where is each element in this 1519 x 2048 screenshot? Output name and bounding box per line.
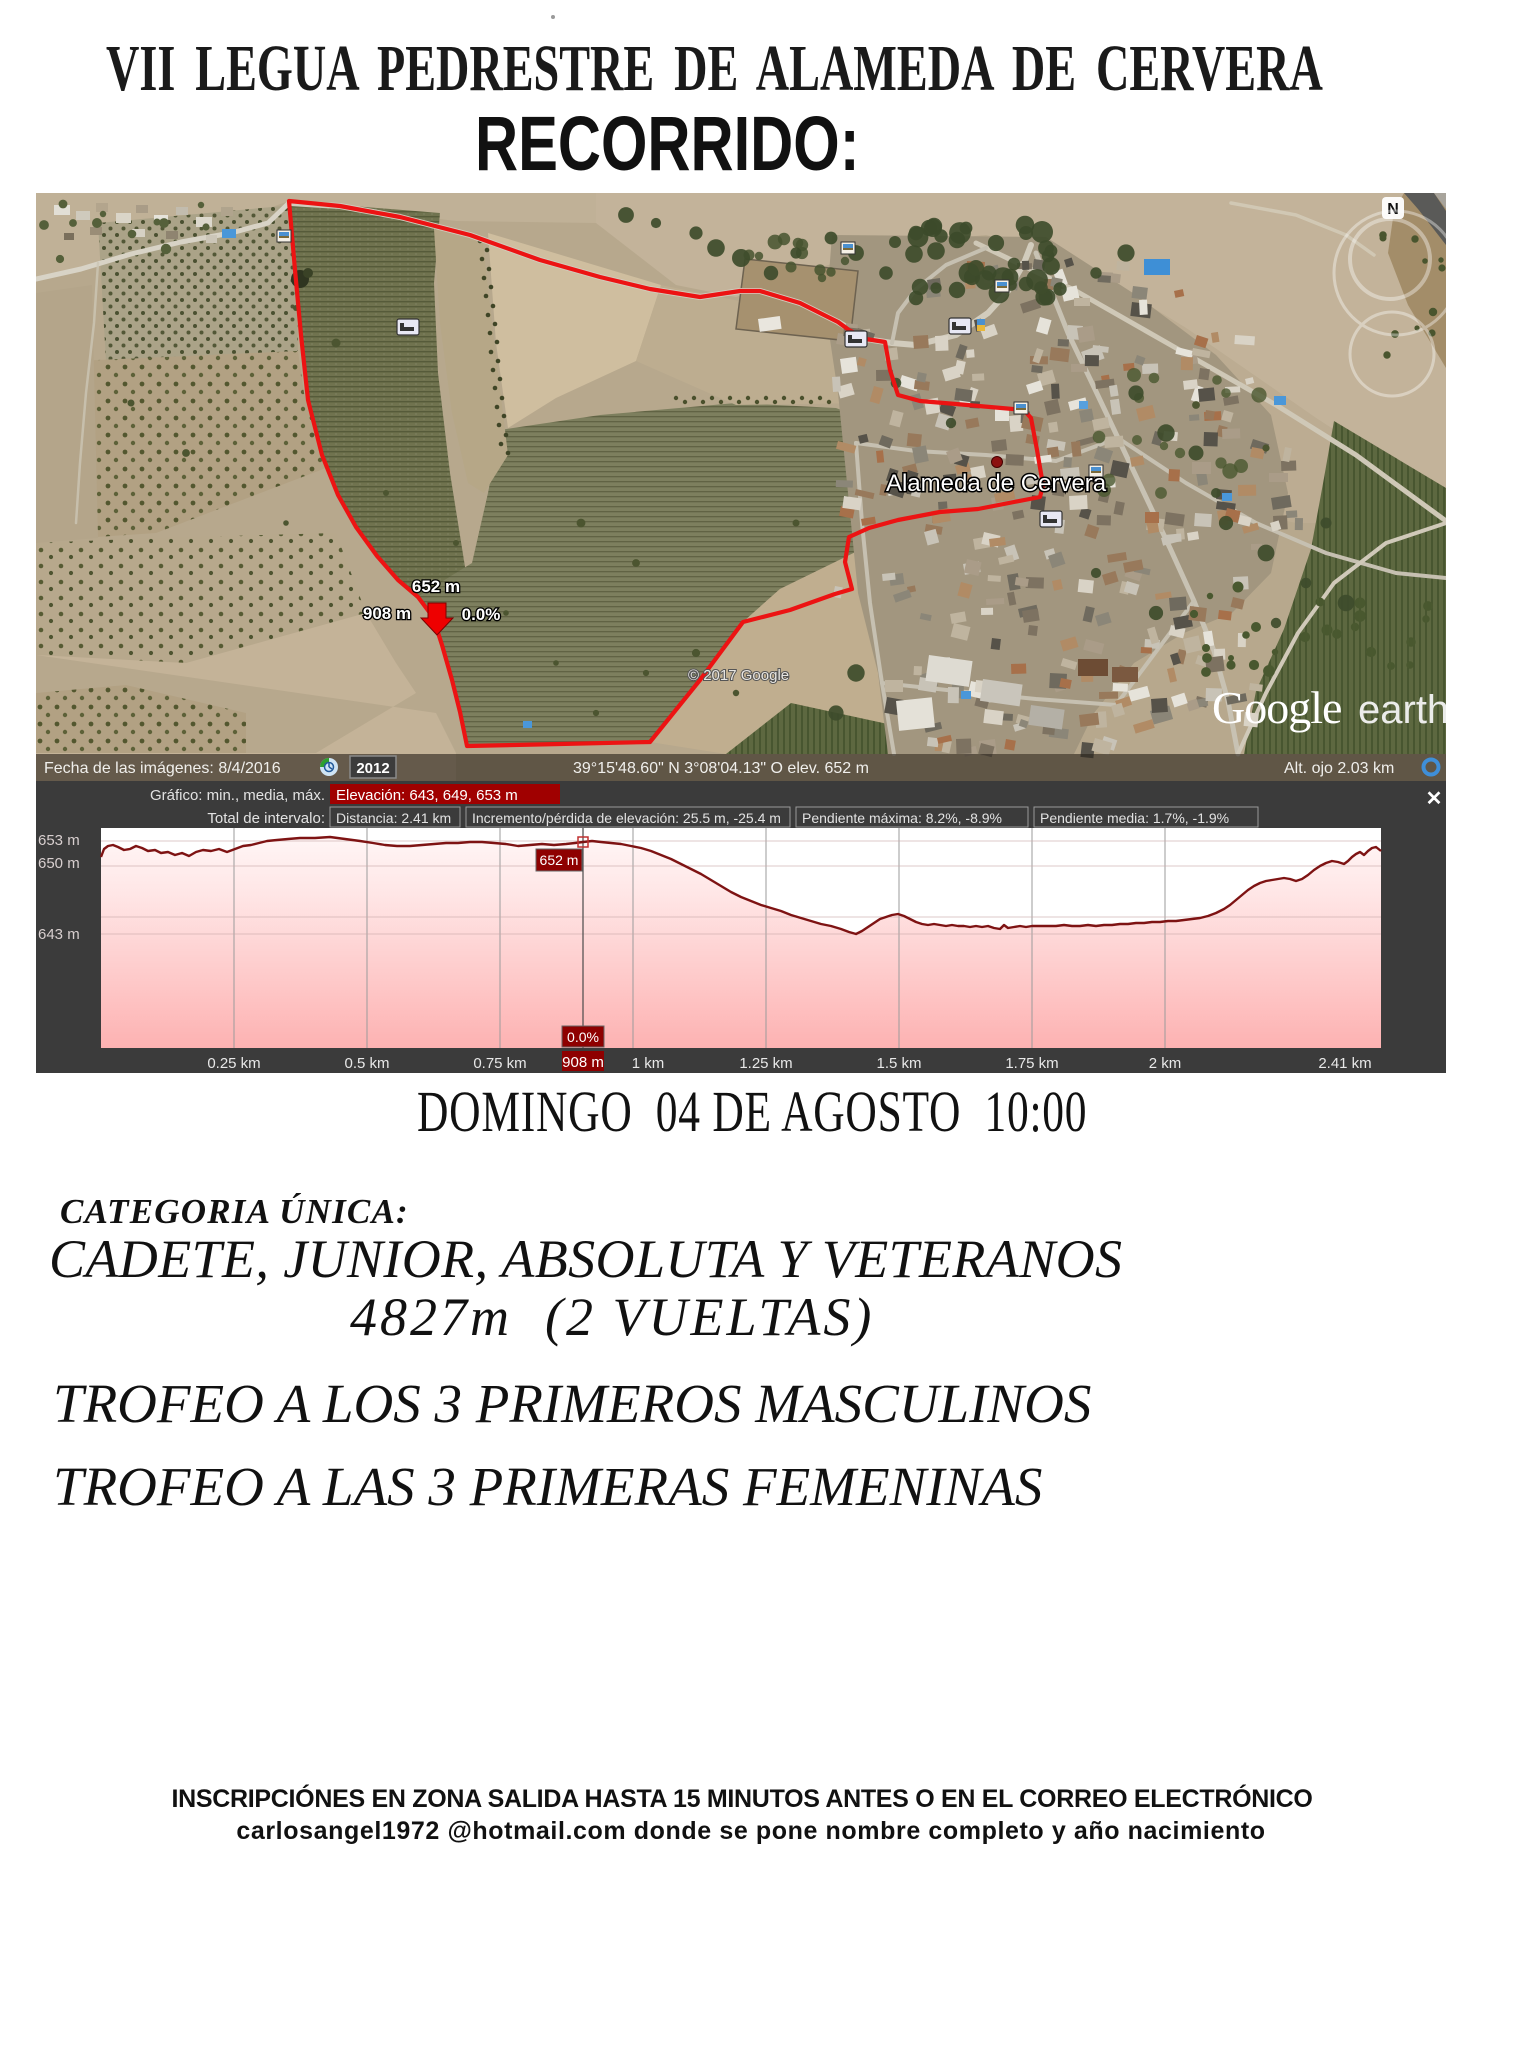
svg-text:908 m: 908 m [363,604,411,623]
svg-text:2012: 2012 [356,760,389,777]
svg-text:Pendiente máxima: 8.2%, -8.9%: Pendiente máxima: 8.2%, -8.9% [802,810,1002,826]
svg-text:Distancia: 2.41 km: Distancia: 2.41 km [336,810,451,826]
svg-text:908 m: 908 m [562,1054,604,1071]
svg-text:Fecha de las imágenes: 8/4/201: Fecha de las imágenes: 8/4/2016 [44,760,281,777]
svg-text:39°15'48.60" N 3°08'04.13" O: 39°15'48.60" N 3°08'04.13" O elev. 652 m [573,760,869,777]
svg-text:0.0%: 0.0% [567,1029,599,1045]
svg-text:652 m: 652 m [412,577,460,596]
svg-text:© 2017 Google: © 2017 Google [688,667,789,684]
svg-text:Alameda de Cervera: Alameda de Cervera [886,470,1107,497]
svg-text:earth: earth [1358,688,1446,732]
svg-text:Elevación: 643, 649, 653 m: Elevación: 643, 649, 653 m [336,787,518,804]
svg-text:0.5 km: 0.5 km [344,1055,389,1072]
svg-text:Incremento/pérdida de elevació: Incremento/pérdida de elevación: 25.5 m,… [472,810,781,826]
svg-text:0.0%: 0.0% [462,605,501,624]
svg-text:653 m: 653 m [38,832,80,849]
svg-text:✕: ✕ [1426,788,1443,810]
svg-text:1.75 km: 1.75 km [1005,1055,1058,1072]
svg-text:1.25 km: 1.25 km [739,1055,792,1072]
svg-text:Alt. ojo 2.03 km: Alt. ojo 2.03 km [1284,760,1394,777]
svg-text:1 km: 1 km [632,1055,665,1072]
svg-text:N: N [1387,201,1399,218]
svg-text:0.75 km: 0.75 km [473,1055,526,1072]
svg-text:Google: Google [1212,682,1341,733]
svg-text:650 m: 650 m [38,855,80,872]
svg-text:Pendiente media: 1.7%, -1.9%: Pendiente media: 1.7%, -1.9% [1040,810,1229,826]
svg-text:Gráfico: min., media, máx.: Gráfico: min., media, máx. [150,787,325,804]
svg-text:Total de intervalo:: Total de intervalo: [207,810,325,827]
svg-text:643 m: 643 m [38,926,80,943]
svg-text:0.25 km: 0.25 km [207,1055,260,1072]
svg-text:652 m: 652 m [540,852,579,868]
svg-text:2.41 km: 2.41 km [1318,1055,1371,1072]
svg-text:2 km: 2 km [1149,1055,1182,1072]
svg-text:1.5 km: 1.5 km [876,1055,921,1072]
